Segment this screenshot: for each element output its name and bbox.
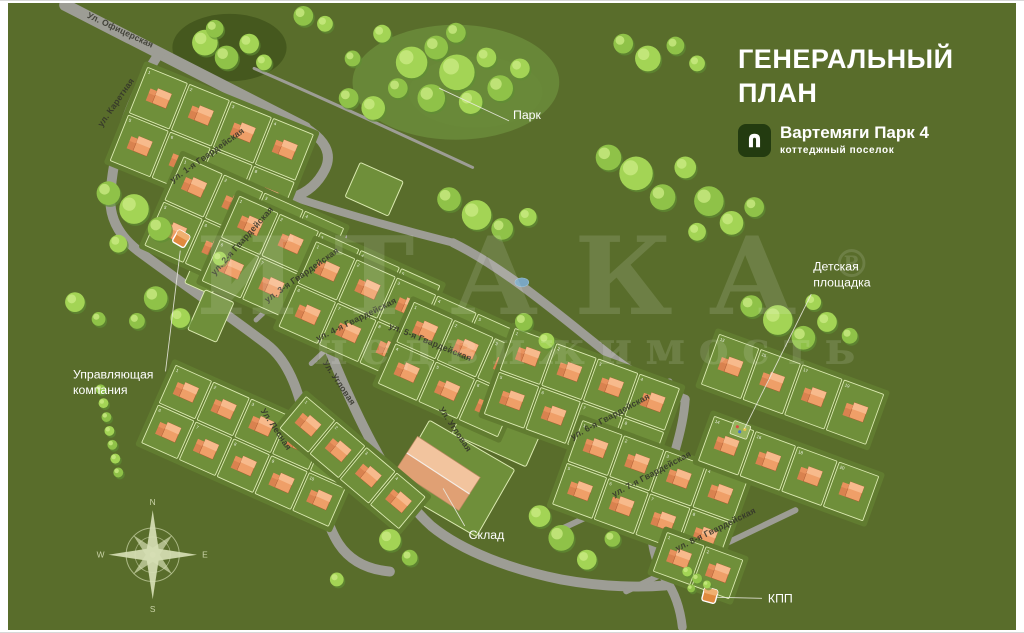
title-block: ГЕНЕРАЛЬНЫЙ ПЛАН Вартемяги Парк 4 коттед…	[738, 43, 1016, 157]
tree	[317, 16, 334, 34]
brand-text: Вартемяги Парк 4 коттеджный поселок	[780, 124, 929, 156]
tree	[596, 145, 623, 173]
tree	[744, 197, 765, 219]
tree	[817, 312, 838, 334]
callout-playground-label: площадка	[813, 275, 871, 289]
tree	[113, 468, 124, 480]
brand-subtitle: коттеджный поселок	[780, 145, 929, 156]
tree	[694, 186, 725, 218]
tree	[842, 328, 859, 346]
tree	[689, 55, 706, 73]
compass-letter: E	[202, 550, 208, 560]
callout-management-label: Управляющая	[73, 367, 153, 381]
tree	[529, 505, 552, 529]
tree	[650, 184, 677, 212]
tree	[437, 187, 462, 213]
tree	[170, 308, 191, 330]
pond	[515, 278, 529, 287]
callout-management-label: компания	[73, 383, 128, 397]
tree	[667, 37, 686, 57]
map-canvas: 1234567812345678123456789101234567891012…	[8, 3, 1016, 630]
empty-parcel-group	[345, 162, 403, 216]
page-title: ГЕНЕРАЛЬНЫЙ ПЛАН	[738, 43, 1016, 111]
compass-letter: N	[150, 497, 156, 507]
tree	[293, 6, 314, 28]
tree	[345, 51, 362, 69]
tree	[763, 305, 794, 337]
tree	[720, 211, 745, 237]
tree	[519, 208, 538, 228]
tree	[129, 313, 146, 331]
tree	[740, 295, 763, 319]
house-logo-icon	[744, 130, 765, 151]
brand-name: Вартемяги Парк 4	[780, 124, 929, 143]
tree	[491, 218, 514, 242]
title-line-2: ПЛАН	[738, 78, 817, 108]
tree	[107, 440, 118, 452]
tree	[104, 426, 115, 438]
master-plan: 1234567812345678123456789101234567891012…	[0, 0, 1024, 633]
title-line-1: ГЕНЕРАЛЬНЫЙ	[738, 44, 953, 74]
tree	[119, 194, 150, 226]
plot[interactable]	[345, 162, 403, 216]
tree	[674, 157, 697, 181]
tree	[373, 25, 392, 45]
tree	[102, 412, 113, 424]
callout-kpp-label: КПП	[768, 591, 793, 605]
tree	[65, 292, 86, 314]
tree	[613, 34, 634, 56]
tree	[402, 550, 419, 568]
brand-logo	[738, 124, 771, 157]
tree	[462, 200, 493, 232]
tree	[144, 286, 169, 312]
tree	[548, 525, 575, 553]
tree	[92, 312, 107, 328]
tree	[792, 326, 817, 352]
callout-playground-label: Детская	[813, 259, 859, 273]
callout-park-label: Парк	[513, 108, 541, 122]
compass-letter: W	[97, 550, 105, 560]
callout-sklad-label: Склад	[469, 528, 505, 542]
compass-rose: NESW	[97, 497, 208, 614]
tree	[635, 46, 662, 74]
tree	[110, 454, 121, 466]
tree	[577, 550, 598, 572]
brand-block: Вартемяги Парк 4 коттеджный поселок	[738, 124, 1016, 157]
compass-letter: S	[150, 604, 156, 614]
tree	[97, 181, 122, 207]
tree	[330, 573, 345, 589]
tree	[99, 398, 110, 410]
tree	[805, 294, 822, 312]
tree	[688, 223, 707, 243]
street-label: Ул. Офицерская	[86, 10, 155, 50]
tree	[619, 157, 654, 193]
